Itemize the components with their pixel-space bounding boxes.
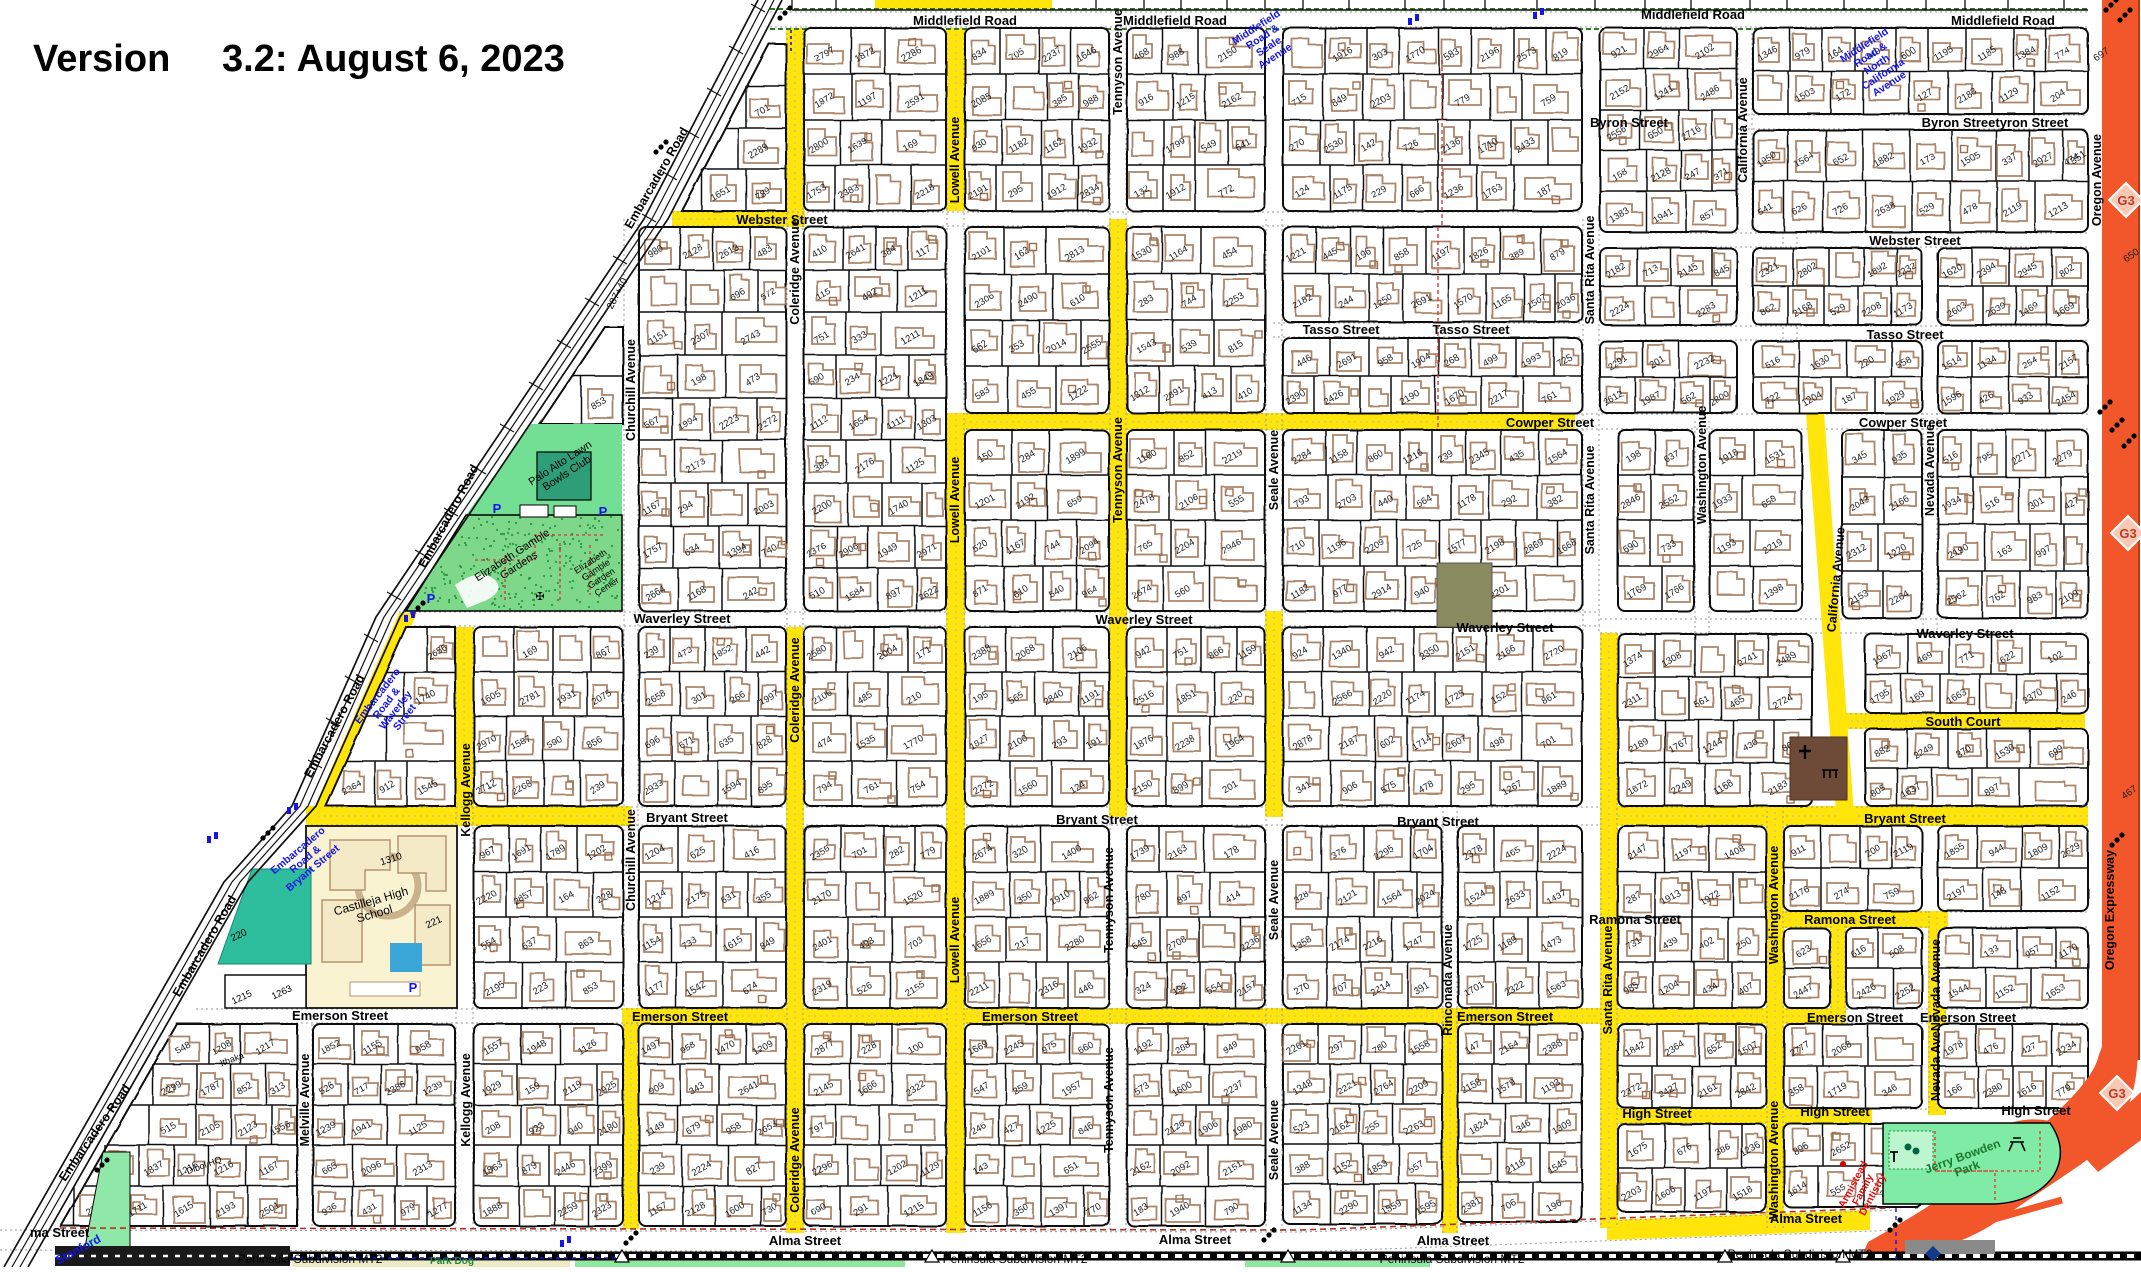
svg-text:Santa Rita Avenue: Santa Rita Avenue	[1601, 926, 1615, 1035]
svg-text:Cowper Street: Cowper Street	[1506, 415, 1595, 430]
svg-text:Tasso Street: Tasso Street	[1432, 322, 1510, 337]
svg-text:Tennyson Avenue: Tennyson Avenue	[1102, 1047, 1116, 1153]
svg-text:South Court: South Court	[1925, 714, 2001, 729]
svg-text:Seale Avenue: Seale Avenue	[1267, 430, 1281, 510]
svg-text:Nevada Avenue: Nevada Avenue	[1923, 424, 1937, 516]
svg-text:Emerson Street: Emerson Street	[292, 1008, 389, 1023]
svg-text:Washington Avenue: Washington Avenue	[1767, 1101, 1781, 1220]
svg-text:Churchill Avenue: Churchill Avenue	[624, 809, 638, 911]
svg-text:Tennyson Avenue: Tennyson Avenue	[1111, 417, 1125, 523]
svg-text:Waverley Street: Waverley Street	[1456, 620, 1554, 635]
svg-text:Peninsula Subdivision MT2: Peninsula Subdivision MT2	[943, 1252, 1088, 1266]
svg-text:Middlefield Road: Middlefield Road	[1641, 7, 1745, 22]
svg-text:Washington Avenue: Washington Avenue	[1767, 846, 1781, 965]
svg-text:Oregon Avenue: Oregon Avenue	[2090, 134, 2104, 226]
svg-text:Peninsula Subdivision MT2: Peninsula Subdivision MT2	[1728, 1247, 1873, 1261]
svg-text:Kellogg Avenue: Kellogg Avenue	[459, 1053, 473, 1147]
svg-text:G3: G3	[2119, 526, 2136, 541]
svg-text:Seale Avenue: Seale Avenue	[1267, 860, 1281, 940]
svg-text:Byron Streetyron Street: Byron Streetyron Street	[1922, 115, 2069, 130]
svg-text:Emerson Street: Emerson Street	[1457, 1009, 1554, 1024]
svg-text:Byron Street: Byron Street	[1590, 115, 1669, 130]
svg-text:California Avenue: California Avenue	[1736, 77, 1750, 182]
svg-text:Churchill Avenue: Churchill Avenue	[624, 339, 638, 441]
svg-text:Tasso Street: Tasso Street	[1866, 327, 1944, 342]
svg-text:Alma Street: Alma Street	[1159, 1232, 1232, 1247]
svg-text:Alma Street: Alma Street	[1417, 1233, 1490, 1248]
svg-text:Peninsula Subdivision MT2: Peninsula Subdivision MT2	[238, 1252, 383, 1266]
svg-text:High Street: High Street	[1800, 1104, 1870, 1119]
svg-text:Lowell Avenue: Lowell Avenue	[948, 897, 962, 984]
svg-text:3.2: August 6, 2023: 3.2: August 6, 2023	[222, 38, 565, 80]
svg-text:Emerson Street: Emerson Street	[982, 1009, 1079, 1024]
svg-text:Santa Rita Avenue: Santa Rita Avenue	[1583, 446, 1597, 555]
svg-text:G3: G3	[2117, 193, 2134, 208]
svg-text:High Street: High Street	[1622, 1106, 1692, 1121]
svg-text:Lowell Avenue: Lowell Avenue	[948, 457, 962, 544]
svg-text:Coleridge Avenue: Coleridge Avenue	[788, 1107, 802, 1212]
svg-text:P: P	[599, 504, 608, 519]
svg-text:P: P	[427, 591, 436, 606]
svg-text:Seale Avenue: Seale Avenue	[1267, 1100, 1281, 1180]
svg-text:ma Street: ma Street	[30, 1225, 90, 1240]
svg-text:Bryant Street: Bryant Street	[1864, 811, 1946, 826]
svg-text:Bryant Street: Bryant Street	[1397, 814, 1479, 829]
svg-text:Waverley Street: Waverley Street	[633, 611, 731, 626]
svg-text:Peninsula Subdivision MT2: Peninsula Subdivision MT2	[1380, 1252, 1525, 1266]
svg-text:Ramona Street: Ramona Street	[1804, 912, 1896, 927]
svg-text:P: P	[409, 980, 418, 995]
svg-text:✠: ✠	[535, 591, 544, 603]
svg-text:Melville Avenue: Melville Avenue	[298, 1054, 312, 1147]
svg-text:Emerson Street: Emerson Street	[1807, 1010, 1904, 1025]
svg-text:Washington Avenue: Washington Avenue	[1695, 406, 1709, 525]
svg-text:Middlefield Road: Middlefield Road	[913, 13, 1017, 28]
svg-text:Waverley Street: Waverley Street	[1095, 612, 1193, 627]
svg-text:Tennyson Avenue: Tennyson Avenue	[1111, 9, 1125, 115]
svg-text:Santa Rita Avenue: Santa Rita Avenue	[1583, 216, 1597, 325]
svg-text:Emerson Street: Emerson Street	[632, 1009, 729, 1024]
svg-text:Kellogg Avenue: Kellogg Avenue	[459, 743, 473, 837]
svg-text:Version: Version	[33, 38, 170, 80]
svg-text:Webster Street: Webster Street	[736, 212, 828, 227]
svg-text:Coleridge Avenue: Coleridge Avenue	[788, 637, 802, 742]
svg-text:Oregon Expressway: Oregon Expressway	[2103, 850, 2117, 970]
svg-text:Nevada AveNevada Avenue: Nevada AveNevada Avenue	[1929, 939, 1943, 1101]
svg-text:Tennyson Avenue: Tennyson Avenue	[1102, 847, 1116, 953]
svg-text:Rinconada Avenue: Rinconada Avenue	[1441, 924, 1455, 1036]
svg-text:Ramona Street: Ramona Street	[1589, 912, 1681, 927]
svg-text:Tasso Street: Tasso Street	[1302, 322, 1380, 337]
svg-text:Alma Street: Alma Street	[769, 1233, 842, 1248]
svg-text:Waverley Street: Waverley Street	[1916, 626, 2014, 641]
svg-text:Park Dog: Park Dog	[430, 1256, 474, 1267]
svg-text:Middlefield Road: Middlefield Road	[1951, 13, 2055, 28]
svg-text:Webster Street: Webster Street	[1869, 233, 1961, 248]
svg-text:Coleridge Avenue: Coleridge Avenue	[788, 219, 802, 324]
svg-text:G3: G3	[2108, 1086, 2125, 1101]
svg-text:High Street: High Street	[2001, 1103, 2071, 1118]
svg-text:P: P	[493, 501, 502, 516]
svg-text:Lowell Avenue: Lowell Avenue	[948, 117, 962, 204]
svg-text:Bryant Street: Bryant Street	[1056, 812, 1138, 827]
svg-text:Bryant Street: Bryant Street	[646, 810, 728, 825]
svg-text:Middlefield Road: Middlefield Road	[1123, 13, 1227, 28]
